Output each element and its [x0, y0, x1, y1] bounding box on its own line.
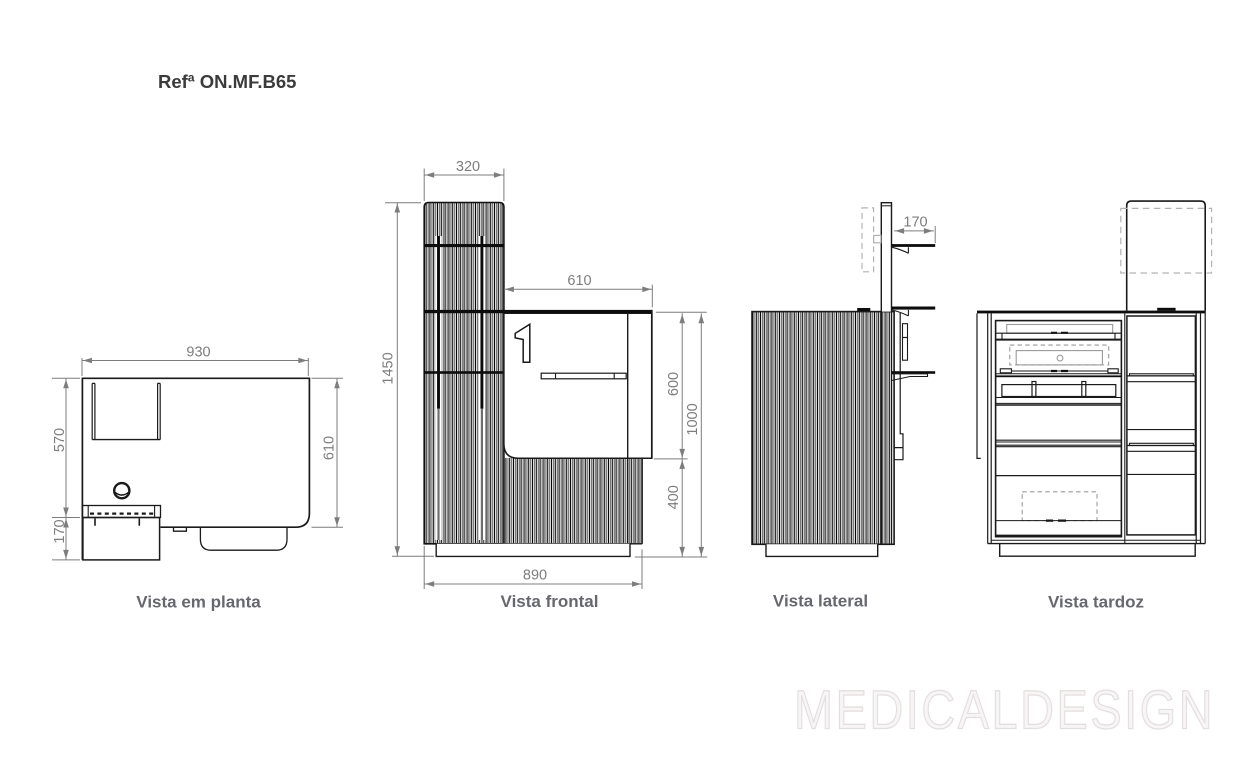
svg-text:Refª ON.MF.B65: Refª ON.MF.B65: [158, 71, 296, 92]
svg-text:1450: 1450: [381, 352, 397, 384]
svg-text:MEDICALDESIGN: MEDICALDESIGN: [794, 679, 1215, 740]
svg-text:170: 170: [52, 519, 68, 543]
svg-text:610: 610: [567, 273, 591, 289]
svg-text:170: 170: [903, 215, 927, 231]
svg-text:Vista frontal: Vista frontal: [501, 592, 599, 611]
svg-text:Vista tardoz: Vista tardoz: [1048, 593, 1144, 612]
svg-text:Vista lateral: Vista lateral: [773, 592, 868, 611]
svg-text:600: 600: [666, 372, 682, 396]
svg-text:400: 400: [666, 485, 682, 509]
svg-text:890: 890: [523, 568, 547, 584]
svg-text:1000: 1000: [685, 403, 701, 435]
svg-text:320: 320: [456, 159, 480, 175]
svg-text:570: 570: [52, 428, 68, 452]
svg-text:Vista em planta: Vista em planta: [136, 593, 261, 612]
svg-text:930: 930: [186, 345, 210, 361]
svg-text:610: 610: [322, 436, 338, 460]
